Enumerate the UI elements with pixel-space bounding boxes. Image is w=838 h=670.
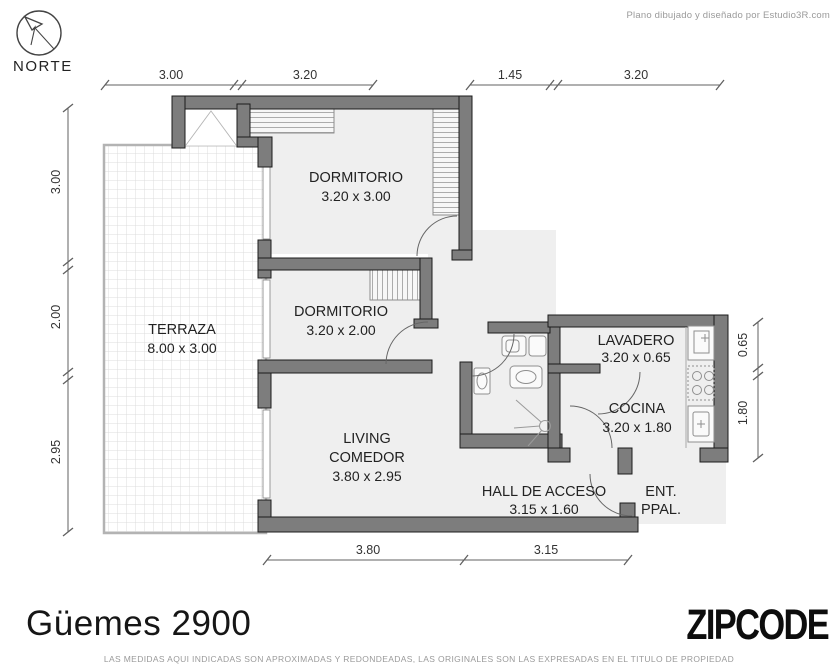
compass-icon [17, 11, 61, 55]
label-dormitorio1: DORMITORIO [309, 170, 403, 186]
dim-top-1: 3.00 [159, 68, 183, 82]
glass-doors [263, 167, 270, 498]
size-hall: 3.15 x 1.60 [509, 501, 578, 517]
label-dormitorio2: DORMITORIO [294, 304, 388, 320]
size-terraza: 8.00 x 3.00 [147, 340, 216, 356]
bidet-icon [529, 336, 546, 356]
label-hall: HALL DE ACCESO [482, 484, 606, 500]
dim-left-3: 2.95 [49, 440, 63, 464]
dim-top-3: 1.45 [498, 68, 522, 82]
label-entrada-2: PPAL. [641, 502, 681, 518]
disclaimer-text: LAS MEDIDAS AQUI INDICADAS SON APROXIMAD… [0, 654, 838, 664]
dim-top-4: 3.20 [624, 68, 648, 82]
size-living: 3.80 x 2.95 [332, 468, 401, 484]
terraza-floor [104, 145, 266, 533]
dim-right-1: 0.65 [736, 333, 750, 357]
dim-bottom-1: 3.80 [356, 543, 380, 557]
label-cocina: COCINA [609, 401, 666, 417]
zipcode-logo: ZIPCODE [686, 601, 828, 650]
label-terraza: TERRAZA [148, 322, 216, 338]
label-living-2: COMEDOR [329, 450, 405, 466]
dim-right-2: 1.80 [736, 401, 750, 425]
dim-left-1: 3.00 [49, 170, 63, 194]
label-lavadero: LAVADERO [598, 333, 675, 349]
window-bay [185, 109, 237, 146]
size-dormitorio2: 3.20 x 2.00 [306, 322, 375, 338]
dim-left-2: 2.00 [49, 305, 63, 329]
dim-bottom-2: 3.15 [534, 543, 558, 557]
floor-plan-drawing: NORTE [0, 0, 838, 670]
size-cocina: 3.20 x 1.80 [602, 419, 671, 435]
floor-plan-page: Plano dibujado y diseñado por Estudio3R.… [0, 0, 838, 670]
compass-label: NORTE [13, 58, 73, 75]
size-lavadero: 3.20 x 0.65 [601, 349, 670, 365]
size-dormitorio1: 3.20 x 3.00 [321, 188, 390, 204]
label-living-1: LIVING [343, 431, 391, 447]
page-title: Güemes 2900 [26, 604, 251, 644]
label-entrada-1: ENT. [645, 484, 676, 500]
dim-top-2: 3.20 [293, 68, 317, 82]
